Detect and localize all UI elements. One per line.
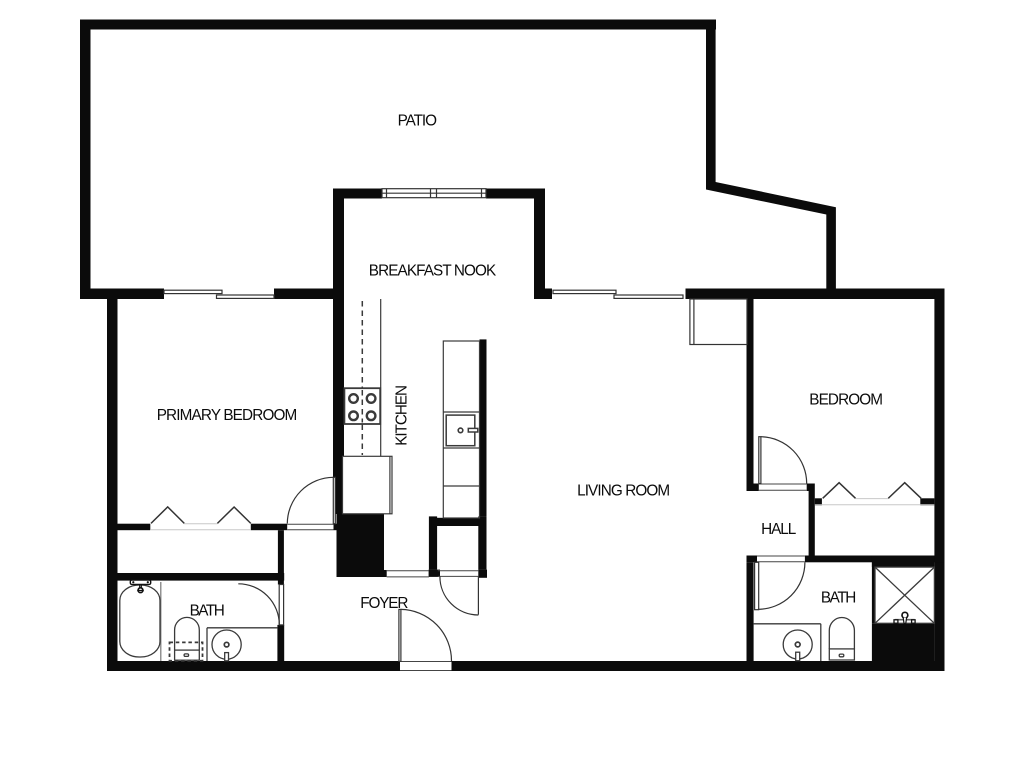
svg-text:BATH: BATH	[190, 603, 225, 620]
svg-text:PRIMARY BEDROOM: PRIMARY BEDROOM	[157, 407, 298, 424]
svg-text:BEDROOM: BEDROOM	[809, 392, 883, 409]
svg-text:BATH: BATH	[821, 589, 856, 606]
svg-text:KITCHEN: KITCHEN	[393, 385, 410, 446]
svg-text:FOYER: FOYER	[360, 595, 408, 612]
svg-text:HALL: HALL	[761, 521, 796, 538]
svg-text:PATIO: PATIO	[398, 113, 437, 130]
svg-text:LIVING ROOM: LIVING ROOM	[577, 483, 670, 500]
svg-text:BREAKFAST NOOK: BREAKFAST NOOK	[369, 263, 497, 280]
